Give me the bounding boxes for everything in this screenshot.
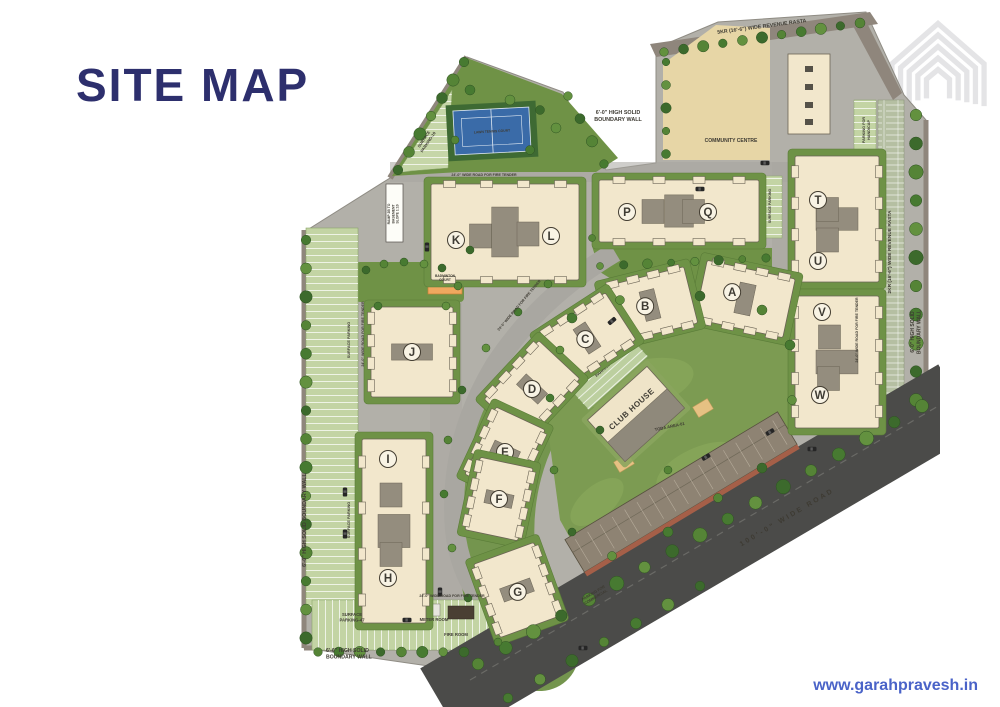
tower-wing (423, 502, 430, 514)
tower-wing (518, 277, 530, 284)
tower-wing (792, 197, 799, 209)
tower-letter-badge: K (448, 232, 465, 249)
tree-icon (722, 513, 734, 525)
tree-icon (567, 313, 577, 323)
tree-icon (910, 280, 922, 292)
tree-icon (420, 260, 428, 268)
tree-icon (910, 109, 922, 121)
tower-letter-badge: B (637, 298, 654, 315)
tree-icon (909, 165, 923, 179)
tree-icon (300, 632, 312, 644)
tree-icon (374, 302, 382, 310)
tower-wing (423, 456, 430, 468)
tower-J[interactable]: J (364, 300, 460, 404)
tree-icon (785, 340, 795, 350)
tree-icon (472, 658, 484, 670)
tower-wing (368, 335, 375, 347)
tree-icon (788, 396, 797, 405)
tower-wing (792, 229, 799, 241)
tree-icon (400, 258, 408, 266)
label-wall-bottom: 6'-6" HIGH SOLIDBOUNDARY WALL (326, 648, 373, 661)
tree-icon (444, 436, 452, 444)
tree-icon (599, 637, 609, 647)
tree-icon (600, 160, 609, 169)
tower-letter: K (452, 235, 461, 247)
tower-letter: W (815, 390, 826, 402)
tree-icon (668, 259, 675, 266)
tower-wing (876, 340, 883, 352)
tree-icon (596, 426, 604, 434)
tree-icon (739, 256, 746, 263)
car-icon (761, 161, 770, 165)
tree-icon (660, 48, 669, 57)
tree-icon (910, 137, 923, 150)
tree-icon (550, 466, 558, 474)
tree-icon (454, 282, 462, 290)
tower-wing (733, 239, 745, 246)
tower-PQ[interactable]: PQ (592, 173, 766, 249)
tower-letter-badge: J (404, 344, 421, 361)
car-icon (579, 646, 588, 650)
tower-wing (450, 312, 457, 324)
car-icon (343, 488, 347, 497)
tree-icon (426, 111, 436, 121)
tower-letter-badge: I (380, 451, 397, 468)
tower-letter: C (581, 334, 589, 346)
tree-icon (589, 235, 596, 242)
tree-icon (301, 320, 311, 330)
tower-wing (876, 197, 883, 209)
tree-icon (300, 376, 312, 388)
tower-wing (876, 307, 883, 319)
tree-icon (662, 127, 670, 135)
tower-core (517, 222, 539, 246)
tree-icon (608, 552, 617, 561)
tower-KL[interactable]: KL (424, 177, 586, 287)
tree-icon (556, 346, 564, 354)
tower-wing (876, 260, 883, 272)
tree-icon (575, 114, 585, 124)
tower-wing (653, 239, 665, 246)
tree-icon (586, 136, 597, 147)
tower-wing (792, 406, 799, 418)
tree-icon (503, 693, 513, 703)
label-wall-left: 6'-0" HIGH SOLID BOUNDARY WALL (302, 472, 308, 566)
tower-wing (693, 177, 705, 184)
tree-icon (749, 496, 762, 509)
tree-icon (447, 74, 459, 86)
tree-icon (440, 490, 448, 498)
tower-wing (733, 177, 745, 184)
tower-letter-badge: V (814, 304, 831, 321)
label-fire-tender-bottom: 24'-0" WIDE ROAD FOR FIRE TENDER (419, 594, 485, 598)
car-icon (403, 618, 412, 622)
tower-wing (423, 548, 430, 560)
tower-letter-badge: C (577, 331, 594, 348)
tree-icon (459, 57, 469, 67)
car-icon (425, 243, 429, 252)
tree-icon (679, 44, 689, 54)
tree-icon (664, 466, 672, 474)
tree-icon (859, 431, 873, 445)
tree-icon (301, 576, 311, 586)
tree-icon (314, 648, 323, 657)
tree-icon (909, 250, 923, 264)
tree-icon (439, 648, 448, 657)
label-surface-parking-pq: SURFACE PARKING (768, 189, 772, 224)
tree-icon (698, 41, 709, 52)
tree-icon (836, 22, 845, 31)
label-fire-room: FIRE ROOM (444, 632, 468, 637)
page-title: SITE MAP (76, 58, 309, 112)
tree-icon (417, 646, 428, 657)
tree-icon (535, 674, 546, 685)
tower-letter: B (641, 301, 649, 313)
tree-icon (756, 32, 767, 43)
tree-icon (546, 394, 554, 402)
tower-wing (368, 380, 375, 392)
tower-core (642, 200, 664, 224)
tree-icon (301, 604, 312, 615)
tower-wing (359, 548, 366, 560)
tower-wing (792, 260, 799, 272)
tree-icon (555, 610, 567, 622)
tree-icon (544, 280, 552, 288)
tree-icon (777, 30, 786, 39)
tree-icon (451, 136, 459, 144)
label-community-centre: COMMUNITY CENTRE (705, 138, 758, 144)
tower-letter: G (513, 587, 522, 599)
tree-icon (796, 27, 806, 37)
tree-icon (663, 527, 673, 537)
tower-wing (613, 239, 625, 246)
tree-icon (910, 195, 922, 207)
label-parking-handicap: PARKING FORHANDICAP (862, 117, 871, 144)
tower-letter: L (547, 231, 554, 243)
tree-icon (737, 35, 747, 45)
tower-wing (359, 594, 366, 606)
tower-letter-badge: L (543, 228, 560, 245)
tree-icon (301, 235, 311, 245)
tower-letter: Q (704, 207, 713, 219)
tree-icon (916, 400, 929, 413)
tree-icon (376, 648, 385, 657)
tower-letter-badge: D (524, 381, 541, 398)
tree-icon (526, 625, 540, 639)
label-meter-room: METER ROOM (420, 617, 449, 622)
tree-icon (404, 147, 415, 158)
tower-letter: P (623, 207, 631, 219)
tower-letter: H (384, 573, 392, 585)
tree-icon (639, 561, 651, 573)
tower-wing (792, 373, 799, 385)
site-map-canvas: LAWN TENNIS COURT (295, 8, 940, 707)
tree-icon (466, 246, 474, 254)
tower-letter: T (814, 195, 821, 207)
tree-icon (910, 366, 922, 378)
tower-wing (613, 177, 625, 184)
tree-icon (564, 92, 573, 101)
parking-strip-left-stalls (306, 228, 358, 608)
tower-wing (368, 357, 375, 369)
tree-icon (396, 647, 406, 657)
tower-wing (653, 177, 665, 184)
tower-letter: A (728, 287, 736, 299)
tower-letter: I (386, 454, 389, 466)
tree-icon (757, 463, 767, 473)
tower-wing (450, 380, 457, 392)
tree-icon (459, 647, 469, 657)
tree-icon (442, 302, 450, 310)
tree-icon (301, 406, 311, 416)
tree-icon (448, 544, 456, 552)
tree-icon (610, 576, 624, 590)
tree-icon (393, 165, 403, 175)
tower-wing (876, 406, 883, 418)
tree-icon (362, 266, 370, 274)
tower-letter-badge: U (810, 253, 827, 270)
tower-letter: F (495, 494, 502, 506)
label-fire-tender-top: 24'-0" WIDE ROAD FOR FIRE TENDER (451, 173, 517, 177)
car-icon (696, 187, 705, 191)
tower-wing (450, 357, 457, 369)
tree-icon (714, 255, 724, 265)
tower-letter: V (818, 307, 826, 319)
tower-letter-badge: P (619, 204, 636, 221)
tree-icon (762, 254, 770, 262)
tree-icon (666, 545, 679, 558)
tower-letter-badge: W (812, 387, 829, 404)
tree-icon (494, 638, 502, 646)
label-fire-tender-right: 24'-0" WIDE ROAD FOR FIRE TENDER (855, 297, 859, 363)
tree-icon (757, 305, 767, 315)
tower-wing (693, 239, 705, 246)
tower-wing (792, 166, 799, 178)
tree-icon (662, 598, 674, 610)
tower-wing (481, 277, 493, 284)
tree-icon (437, 93, 448, 104)
tower-wing (444, 181, 456, 188)
tower-IH[interactable]: IH (355, 432, 433, 630)
tree-icon (714, 494, 723, 503)
tree-icon (691, 257, 699, 265)
tree-icon (526, 146, 535, 155)
community-centre-building (788, 54, 830, 134)
tower-core (470, 224, 492, 248)
tree-icon (855, 18, 865, 28)
tree-icon (551, 123, 561, 133)
tennis-court: LAWN TENNIS COURT (446, 101, 539, 162)
tree-icon (805, 465, 817, 477)
tower-TU[interactable]: TU (788, 149, 886, 289)
tree-icon (888, 416, 900, 428)
tower-core (380, 483, 402, 507)
tree-icon (776, 479, 790, 493)
tower-core (380, 543, 402, 567)
label-surface-parking-left-a: SURFACE PARKING (347, 322, 351, 358)
tower-letter-badge: T (810, 192, 827, 209)
label-fire-tender-left: 24'-0" WIDE ROAD FOR FIRE TENDER (361, 301, 365, 367)
tree-icon (693, 528, 707, 542)
tree-icon (505, 95, 515, 105)
tower-letter: U (814, 256, 822, 268)
website-link[interactable]: www.garahpravesh.in (813, 677, 978, 695)
tree-icon (300, 291, 312, 303)
tower-core (819, 325, 841, 349)
tree-icon (815, 23, 826, 34)
tower-wing (359, 502, 366, 514)
label-surface-parking-left-b: SURFACE PARKING (347, 502, 351, 538)
tower-wing (518, 181, 530, 188)
tower-letter-badge: G (509, 583, 526, 600)
tree-icon (662, 150, 671, 159)
tree-icon (438, 264, 446, 272)
tree-icon (380, 260, 388, 268)
tower-wing (555, 181, 567, 188)
tree-icon (536, 106, 545, 115)
label-revenue-rasta-right: 2KR (16'-6") WIDE REVENUE RASTA (887, 210, 893, 294)
tower-core (492, 207, 519, 257)
tower-wing (555, 277, 567, 284)
tree-icon (832, 448, 845, 461)
tree-icon (662, 58, 670, 66)
tree-icon (616, 296, 625, 305)
tower-wing (876, 373, 883, 385)
tower-core (817, 228, 839, 252)
tower-wing (481, 181, 493, 188)
label-surface-parking-47: SURFACEPARKING-47 (339, 612, 365, 622)
tower-wing (450, 335, 457, 347)
tree-icon (695, 581, 705, 591)
tower-wing (876, 229, 883, 241)
tree-icon (661, 103, 671, 113)
tree-icon (465, 85, 475, 95)
tower-letter: J (409, 347, 415, 359)
tree-icon (566, 654, 578, 666)
tree-icon (643, 259, 653, 269)
tower-wing (876, 166, 883, 178)
tree-icon (597, 263, 604, 270)
tree-icon (620, 261, 628, 269)
tree-icon (301, 348, 312, 359)
label-wall-right: 6'-0" HIGH SOLIDBOUNDARY WALL (910, 310, 922, 354)
tower-letter: D (528, 384, 536, 396)
tower-letter-badge: Q (700, 204, 717, 221)
tower-VW[interactable]: VW (788, 289, 886, 435)
tree-icon (301, 434, 312, 445)
tree-icon (719, 39, 728, 48)
label-wall-nw: 6'-0" HIGH SOLIDBOUNDARY WALL (594, 110, 642, 123)
tree-icon (458, 386, 466, 394)
meter-room-block (448, 606, 474, 619)
label-basement-ramp: RAMP 2B TOBASEMENTSLOPE 1:10 (387, 203, 400, 224)
tower-letter-badge: A (724, 284, 741, 301)
tree-icon (301, 263, 312, 274)
tree-icon (910, 223, 923, 236)
tree-icon (568, 528, 576, 536)
tree-icon (300, 461, 312, 473)
tree-icon (482, 344, 490, 352)
car-icon (808, 447, 817, 451)
tree-icon (662, 81, 671, 90)
tower-letter-badge: H (380, 570, 397, 587)
tree-icon (695, 291, 705, 301)
tower-wing (359, 456, 366, 468)
tree-icon (631, 618, 642, 629)
tower-wing (368, 312, 375, 324)
tower-letter-badge: F (491, 491, 508, 508)
